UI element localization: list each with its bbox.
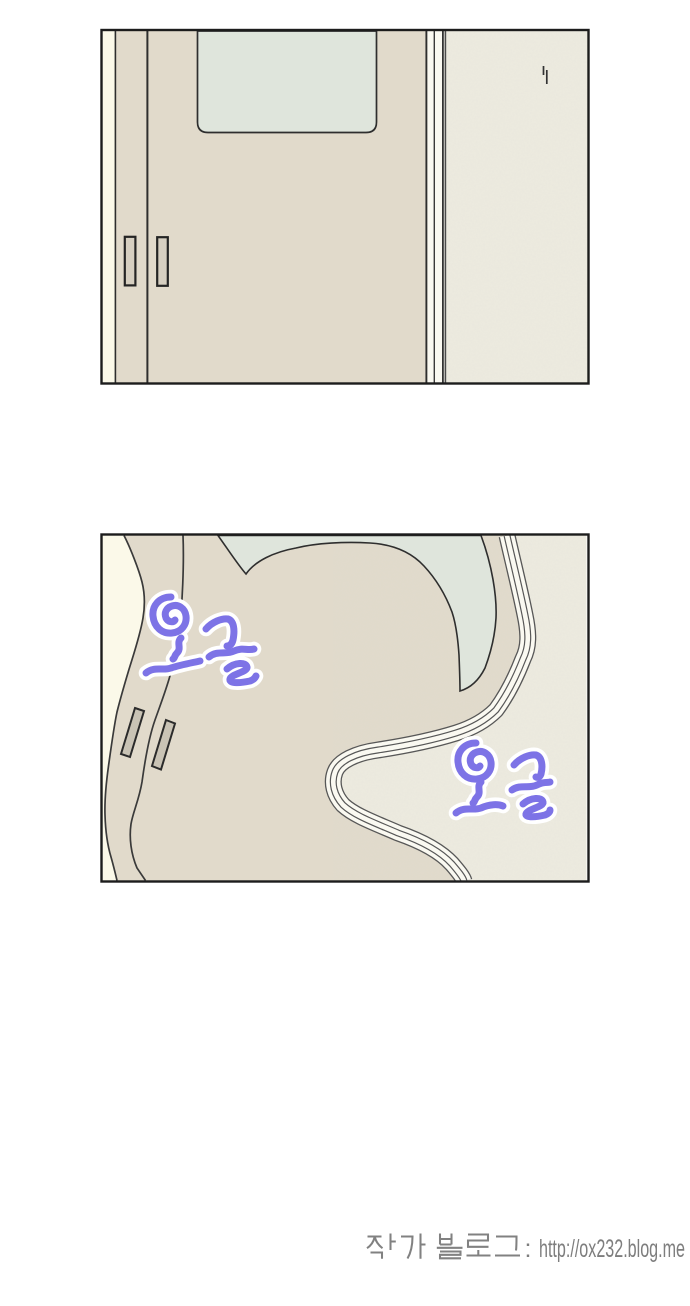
svg-text:http://ox232.blog.me: http://ox232.blog.me: [539, 1235, 685, 1263]
svg-text::: :: [525, 1235, 532, 1263]
